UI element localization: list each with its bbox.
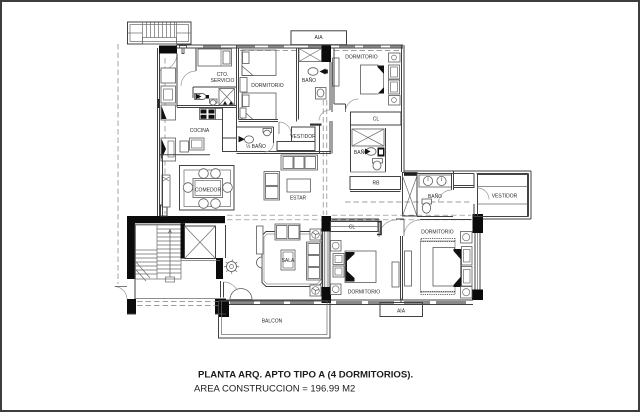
svg-text:SERVICIO: SERVICIO — [211, 78, 235, 84]
svg-text:COCINA: COCINA — [190, 128, 210, 134]
svg-text:BAÑO: BAÑO — [354, 149, 368, 156]
svg-text:AIA: AIA — [397, 309, 406, 315]
svg-text:DORMITORIO: DORMITORIO — [345, 55, 378, 61]
svg-text:AIA: AIA — [314, 35, 323, 41]
svg-text:VESTIDOR: VESTIDOR — [290, 134, 316, 140]
svg-text:COMEDOR: COMEDOR — [195, 188, 222, 194]
svg-text:DORMITORIO: DORMITORIO — [348, 290, 381, 296]
svg-text:CL: CL — [373, 117, 380, 123]
svg-text:AREA CONSTRUCCION = 196.99: AREA CONSTRUCCION = 196.99 M2 — [194, 384, 355, 395]
svg-text:BAÑO: BAÑO — [302, 77, 316, 84]
svg-text:SALA: SALA — [282, 258, 295, 264]
svg-text:DORMITORIO: DORMITORIO — [251, 83, 284, 89]
svg-text:ESTAR: ESTAR — [290, 196, 307, 202]
svg-text:PLANTA ARQ. APTO TIPO A (4 DOR: PLANTA ARQ. APTO TIPO A (4 DORMITORIOS). — [198, 370, 413, 381]
svg-text:½ BAÑO: ½ BAÑO — [246, 143, 266, 150]
svg-text:RB: RB — [373, 181, 381, 187]
svg-text:BALCON: BALCON — [262, 319, 283, 325]
svg-text:CL: CL — [349, 225, 356, 231]
svg-text:DORMITORIO: DORMITORIO — [421, 230, 454, 236]
svg-text:VESTIDOR: VESTIDOR — [492, 194, 518, 200]
